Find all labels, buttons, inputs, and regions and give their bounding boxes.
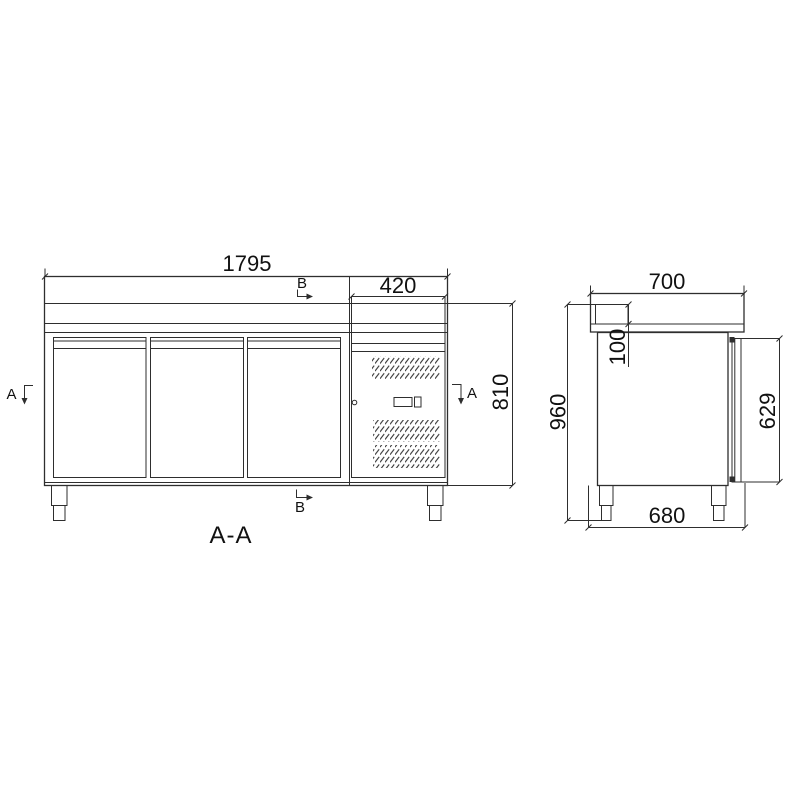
side-leg-right-upper <box>712 486 727 506</box>
door-3 <box>248 338 341 478</box>
leg-right-upper <box>428 486 444 506</box>
section-arrow-a-right <box>452 385 461 400</box>
dim-overall-width-label: 1795 <box>223 251 272 276</box>
vent-grille-middle <box>373 420 440 442</box>
section-marker-a-right-label: A <box>467 385 477 402</box>
door-1-handle-recess <box>54 341 147 349</box>
door-3-panel <box>248 338 341 478</box>
worktop-slab <box>591 294 745 333</box>
technical-drawing-canvas: 1795 420 810 A A B B <box>0 0 800 800</box>
section-marker-a-left: A <box>6 386 33 405</box>
section-arrow-a-left <box>25 386 34 400</box>
side-leg-left-upper <box>600 486 614 506</box>
dim-base-depth-label: 680 <box>649 503 686 528</box>
side-view: 700 960 100 629 680 <box>546 269 783 531</box>
dim-total-height: 960 <box>546 302 602 524</box>
leg-left-upper <box>52 486 68 506</box>
dim-body-height-label: 810 <box>488 374 513 411</box>
section-caption: A-A <box>209 522 252 549</box>
hinge-bottom <box>730 477 735 483</box>
side-leg-left-foot <box>602 506 612 521</box>
section-marker-a-left-label: A <box>6 386 16 403</box>
section-marker-b-bottom: B <box>295 490 313 517</box>
dim-door-height-label: 629 <box>755 393 780 430</box>
dim-body-height: 810 <box>488 301 516 489</box>
dim-depth-label: 700 <box>649 269 686 294</box>
refrigerated-counter-drawing: 1795 420 810 A A B B <box>0 0 800 800</box>
door-1 <box>54 338 147 478</box>
side-door <box>730 337 742 482</box>
leg-right-foot <box>430 506 442 521</box>
lock-hole-icon <box>352 400 357 405</box>
section-marker-b-top-label: B <box>297 275 307 292</box>
door-3-handle-recess <box>248 341 341 349</box>
side-leg-right-foot <box>714 506 725 521</box>
section-marker-b-bottom-label: B <box>295 499 305 516</box>
dim-total-height-label: 960 <box>546 394 571 431</box>
worktop-lines <box>45 304 513 486</box>
switch-cutout <box>415 397 422 407</box>
dim-door-height: 629 <box>741 336 783 486</box>
vent-grille-upper <box>372 356 440 379</box>
front-legs <box>52 486 444 521</box>
section-marker-b-top: B <box>297 275 313 300</box>
section-arrowhead-a-right <box>458 398 464 405</box>
door-2-handle-recess <box>151 341 244 349</box>
vent-grille-lower <box>373 445 440 468</box>
dim-engine-width-label: 420 <box>380 273 417 298</box>
section-arrowhead-b-bottom <box>307 495 314 501</box>
dim-depth: 700 <box>588 269 748 297</box>
leg-left-foot <box>54 506 66 521</box>
dim-backsplash-height-label: 100 <box>605 329 630 366</box>
backsplash-profile <box>596 305 629 325</box>
section-arrowhead-a-left <box>22 398 28 405</box>
control-display-cutout <box>394 398 412 407</box>
section-marker-a-right: A <box>452 385 477 405</box>
side-door-panel <box>732 339 741 483</box>
door-2 <box>151 338 244 478</box>
hinge-top <box>730 337 735 343</box>
engine-panel-top-strip <box>352 344 446 352</box>
section-arrow-b-bottom <box>297 490 308 498</box>
door-2-panel <box>151 338 244 478</box>
section-arrowhead-b-top <box>307 294 314 300</box>
door-1-panel <box>54 338 147 478</box>
front-view: 1795 420 810 A A B B <box>6 251 515 549</box>
